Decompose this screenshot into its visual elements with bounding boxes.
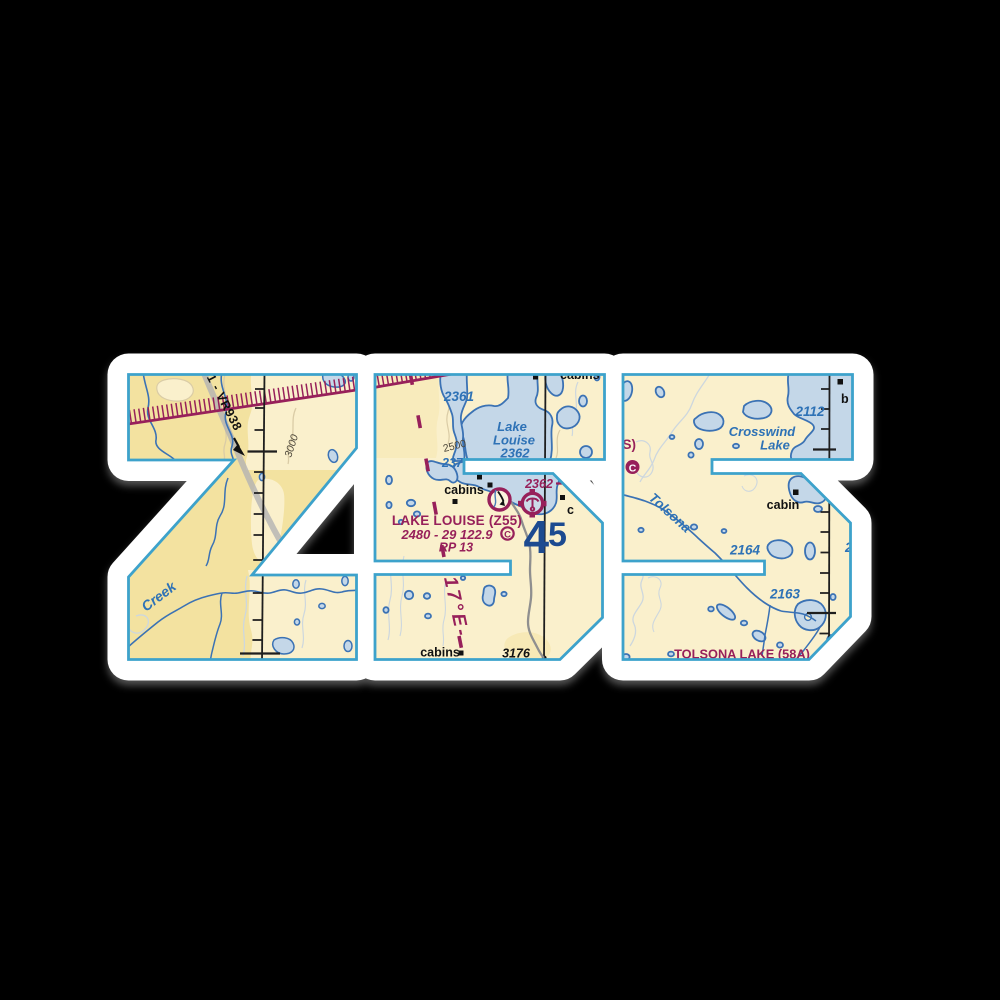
svg-text:c: c — [567, 503, 574, 517]
svg-text:cabins: cabins — [444, 483, 484, 497]
svg-text:Lake: Lake — [760, 438, 790, 453]
svg-text:b: b — [841, 392, 849, 406]
svg-text:2163: 2163 — [769, 587, 801, 602]
svg-text:cabin: cabin — [767, 498, 800, 512]
svg-text:C: C — [504, 530, 511, 541]
svg-text:4: 4 — [524, 511, 550, 563]
svg-text:2361: 2361 — [443, 389, 474, 404]
svg-text:5: 5 — [548, 516, 567, 554]
svg-text:LAKE LOUISE (Z55): LAKE LOUISE (Z55) — [392, 513, 522, 528]
svg-text:C: C — [629, 463, 637, 475]
svg-text:2112: 2112 — [794, 404, 825, 419]
svg-text:2164: 2164 — [729, 543, 761, 558]
svg-text:2362: 2362 — [524, 477, 553, 491]
svg-text:RP 13: RP 13 — [439, 541, 473, 555]
svg-text:cabins: cabins — [420, 646, 460, 660]
